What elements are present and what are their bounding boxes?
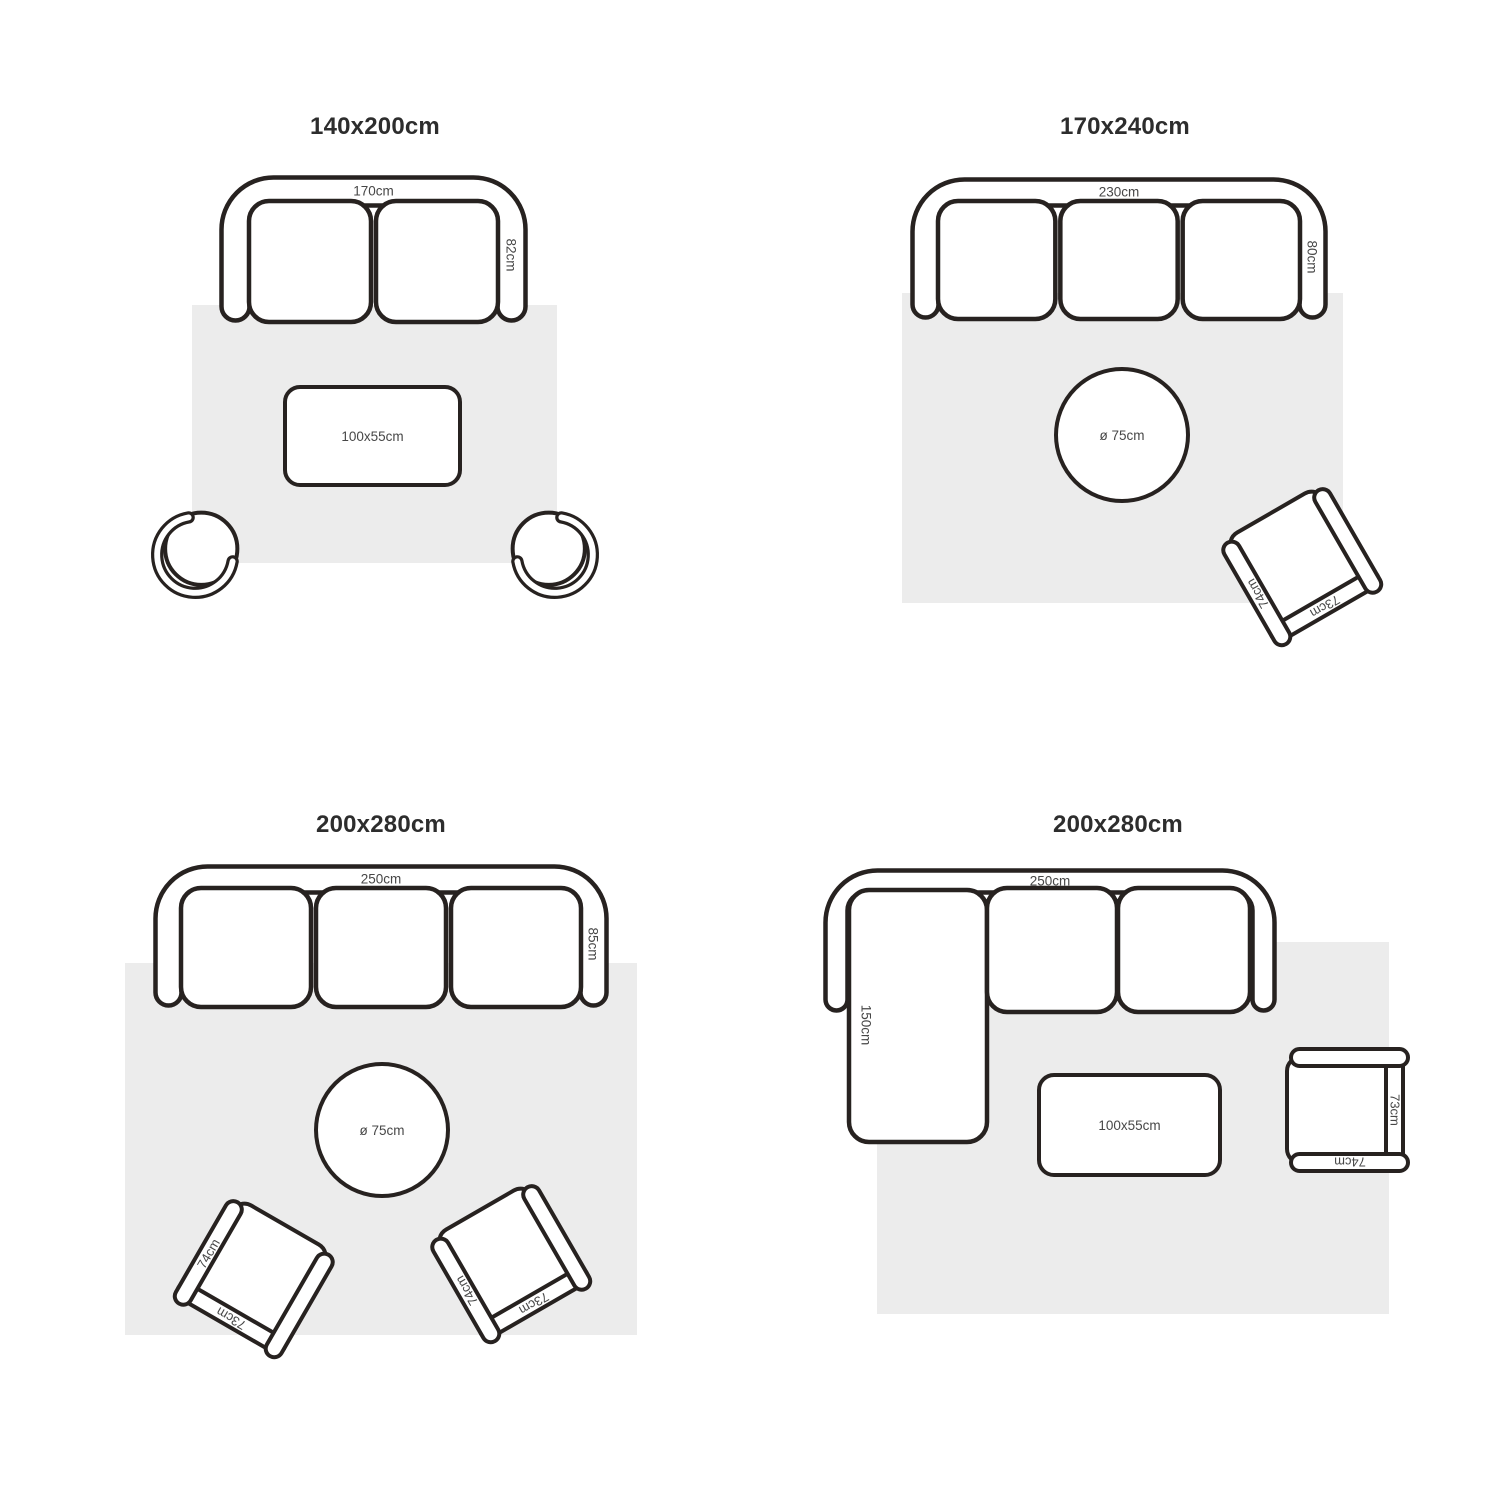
armchair-back-label: 73cm bbox=[1387, 1094, 1402, 1126]
armchair: 73cm74cm bbox=[1283, 1047, 1411, 1173]
layout-title: 200x280cm bbox=[958, 811, 1278, 839]
sofa-chaise-label: 150cm bbox=[859, 1005, 874, 1046]
sofa-cushion bbox=[249, 201, 371, 322]
sofa-cushion bbox=[1183, 201, 1300, 319]
sofa-cushion bbox=[181, 888, 311, 1007]
sofa-cushion bbox=[1060, 201, 1177, 319]
sofa-depth-label: 82cm bbox=[504, 238, 519, 271]
sofa-cushion bbox=[316, 888, 446, 1007]
table-size-label: ø 75cm bbox=[1099, 428, 1144, 443]
rug-size-guide-diagram: 140x200cm170cm82cm100x55cm170x240cm230cm… bbox=[0, 0, 1500, 1500]
sofa-2-seat: 170cm82cm bbox=[216, 172, 531, 326]
sectional-sofa: 250cm150cm bbox=[820, 865, 1280, 1016]
sofa-cushion bbox=[1118, 888, 1250, 1012]
sofa-cushion bbox=[376, 201, 498, 322]
round-table: ø 75cm bbox=[1054, 367, 1190, 503]
armchair-seat bbox=[1285, 1055, 1391, 1165]
table-size-label: ø 75cm bbox=[359, 1123, 404, 1138]
layout-title: 170x240cm bbox=[965, 113, 1285, 141]
sofa-3-seat: 250cm85cm bbox=[150, 861, 612, 1011]
sofa-cushion bbox=[987, 888, 1117, 1012]
sofa-cushion bbox=[938, 201, 1055, 319]
tub-chair bbox=[504, 504, 599, 599]
table-size-label: 100x55cm bbox=[341, 429, 403, 444]
armchair-left-arm: 74cm bbox=[1289, 1152, 1410, 1173]
table-size-label: 100x55cm bbox=[1098, 1118, 1160, 1133]
sofa-width-label: 230cm bbox=[1099, 185, 1140, 200]
layout-title: 140x200cm bbox=[215, 113, 535, 141]
sofa-width-label: 170cm bbox=[353, 184, 394, 199]
armchair-right-arm bbox=[1289, 1047, 1410, 1068]
sofa-cushion bbox=[451, 888, 581, 1007]
round-table: ø 75cm bbox=[314, 1062, 450, 1198]
tub-chair bbox=[151, 504, 246, 599]
sofa-depth-label: 80cm bbox=[1305, 240, 1320, 273]
sofa-depth-label: 85cm bbox=[586, 927, 601, 960]
layout-title: 200x280cm bbox=[221, 811, 541, 839]
sofa-width-label: 250cm bbox=[361, 872, 402, 887]
armchair-arm-label: 74cm bbox=[1334, 1155, 1366, 1170]
coffee-table: 100x55cm bbox=[1037, 1073, 1222, 1177]
coffee-table: 100x55cm bbox=[283, 385, 462, 487]
sofa-width-label: 250cm bbox=[1030, 874, 1071, 889]
sofa-3-seat: 230cm80cm bbox=[907, 174, 1331, 323]
